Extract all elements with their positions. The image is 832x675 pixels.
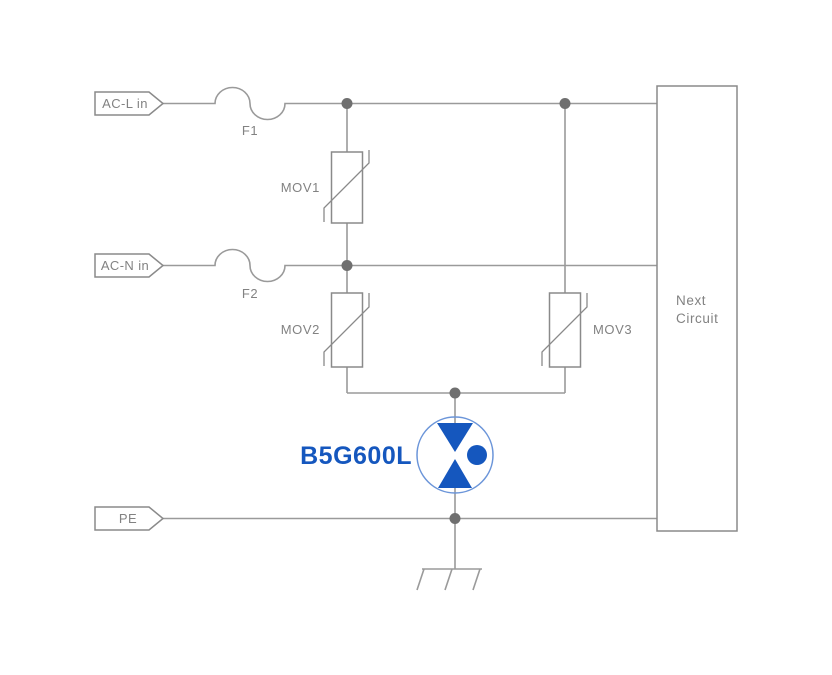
mov2-body bbox=[332, 293, 363, 367]
fuse-f2-label: F2 bbox=[242, 286, 258, 301]
surge-protection-circuit-diagram: AC-L in AC-N in PE F1 F2 MOV1 MOV2 bbox=[0, 0, 832, 675]
mov1-label: MOV1 bbox=[281, 180, 320, 195]
junction-dot-acl-mov3 bbox=[560, 98, 571, 109]
gdt-label: B5G600L bbox=[300, 442, 412, 470]
mov3-symbol bbox=[542, 293, 587, 367]
junction-dot-pe-gdt bbox=[450, 513, 461, 524]
ac-l-in-tag-label: AC-L in bbox=[102, 96, 148, 111]
next-circuit-label-line1: Next bbox=[676, 293, 706, 308]
ac-n-in-tag-label: AC-N in bbox=[101, 258, 149, 273]
ac-n-wire bbox=[163, 250, 657, 282]
mov2-symbol bbox=[324, 293, 369, 367]
circuit-diagram-canvas: AC-L in AC-N in PE F1 F2 MOV1 MOV2 bbox=[0, 0, 832, 675]
gdt-down-triangle-icon bbox=[437, 423, 473, 452]
gdt-gas-dot-icon bbox=[467, 445, 487, 465]
junction-dot-acl-mov1 bbox=[342, 98, 353, 109]
mov1-symbol bbox=[324, 150, 369, 223]
ac-l-in-tag: AC-L in bbox=[95, 92, 163, 115]
ac-n-in-tag: AC-N in bbox=[95, 254, 163, 277]
next-circuit-block: Next Circuit bbox=[657, 86, 737, 531]
wires bbox=[163, 88, 657, 570]
next-circuit-box bbox=[657, 86, 737, 531]
junction-dot-bus-gdt bbox=[450, 388, 461, 399]
mov3-label: MOV3 bbox=[593, 322, 632, 337]
earth-ground-icon bbox=[417, 569, 482, 590]
gdt-symbol bbox=[417, 417, 493, 493]
mov1-body bbox=[332, 152, 363, 223]
mov2-label: MOV2 bbox=[281, 322, 320, 337]
gdt-up-triangle-icon bbox=[438, 459, 472, 488]
earth-ground-slashes bbox=[417, 569, 480, 590]
pe-tag: PE bbox=[95, 507, 163, 530]
mov3-body bbox=[550, 293, 581, 367]
junction-dot-acn-mov1 bbox=[342, 260, 353, 271]
fuse-f1-label: F1 bbox=[242, 123, 258, 138]
pe-tag-label: PE bbox=[119, 511, 137, 526]
ac-l-wire bbox=[163, 88, 657, 120]
next-circuit-label-line2: Circuit bbox=[676, 311, 718, 326]
